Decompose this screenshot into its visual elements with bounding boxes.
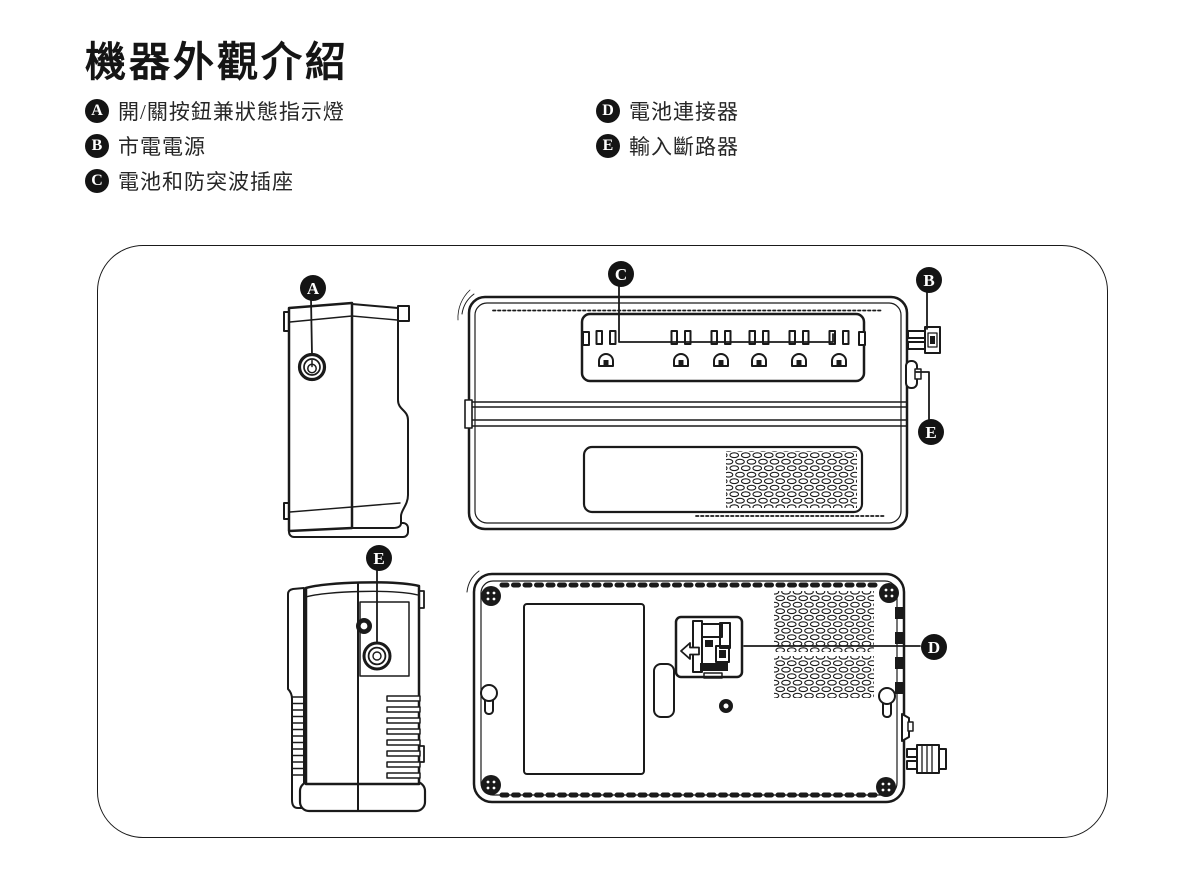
vent-grille-top-view: [726, 451, 857, 508]
legend-left-column: A 開/關按鈕兼狀態指示燈 B 市電電源 C 電池和防突波插座: [85, 99, 345, 204]
legend-item-b: B 市電電源: [85, 134, 345, 158]
callout-badge-c: C: [608, 261, 634, 287]
legend-item-e: E 輸入斷路器: [596, 134, 739, 158]
legend-badge-b: B: [85, 134, 109, 158]
legend-badge-d: D: [596, 99, 620, 123]
legend-label-b: 市電電源: [118, 131, 206, 161]
manual-page: 機器外觀介紹 A 開/關按鈕兼狀態指示燈 B 市電電源 C 電池和防突波插座 D…: [0, 0, 1195, 894]
legend-badge-c: C: [85, 169, 109, 193]
legend-label-d: 電池連接器: [629, 96, 739, 126]
callout-badge-e-top: E: [918, 419, 944, 445]
ac-inlet-drawing: [908, 327, 940, 353]
vent-holes-lower: [774, 656, 874, 698]
legend-item-a: A 開/關按鈕兼狀態指示燈: [85, 99, 345, 123]
bottom-view-drawing: [467, 571, 946, 802]
callout-badge-b: B: [916, 267, 942, 293]
top-view-drawing: [458, 290, 940, 529]
callout-badge-d: D: [921, 634, 947, 660]
legend-item-d: D 電池連接器: [596, 99, 739, 123]
page-title: 機器外觀介紹: [85, 28, 349, 88]
device-views-drawing: [96, 244, 1107, 837]
rear-view-drawing: [288, 582, 425, 811]
cord-retainer-drawing: [902, 714, 946, 773]
callout-badge-a: A: [300, 275, 326, 301]
legend-label-a: 開/關按鈕兼狀態指示燈: [118, 96, 345, 126]
legend-badge-e: E: [596, 134, 620, 158]
legend-right-column: D 電池連接器 E 輸入斷路器: [596, 99, 739, 169]
breaker-side-drawing: [906, 361, 921, 388]
legend-badge-a: A: [85, 99, 109, 123]
callout-badge-e-rear: E: [366, 545, 392, 571]
legend-item-c: C 電池和防突波插座: [85, 169, 345, 193]
legend-label-e: 輸入斷路器: [629, 131, 739, 161]
diagram-panel: A C B E E D: [97, 245, 1108, 838]
front-view-drawing: [284, 303, 409, 537]
vent-holes-upper: [774, 591, 874, 652]
power-button-drawing: [300, 355, 325, 380]
battery-connector-drawing: [676, 617, 742, 678]
legend-label-c: 電池和防突波插座: [118, 166, 294, 196]
